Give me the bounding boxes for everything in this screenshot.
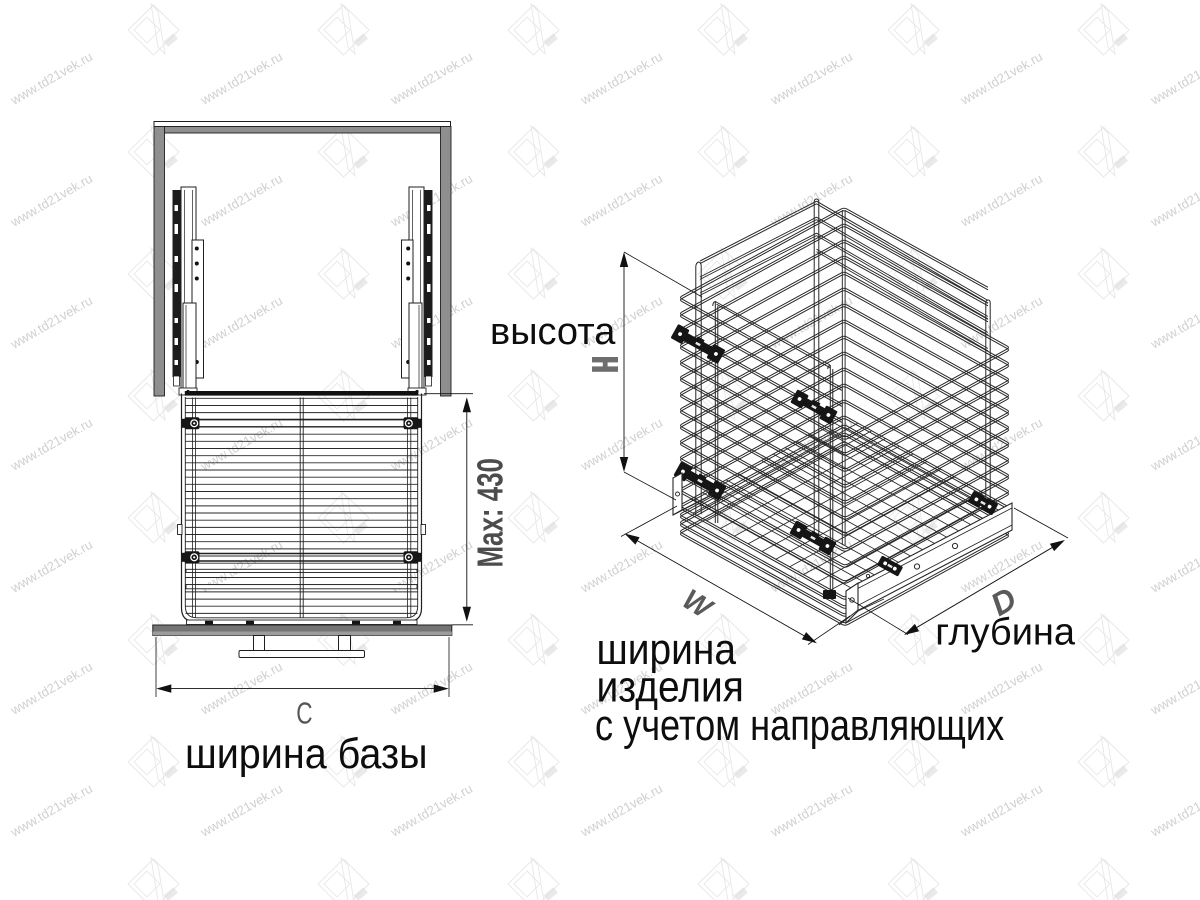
svg-text:высота: высота bbox=[490, 311, 616, 353]
svg-text:с учетом направляющих: с учетом направляющих bbox=[595, 701, 1004, 750]
svg-text:глубина: глубина bbox=[935, 612, 1076, 654]
svg-text:ширина базы: ширина базы bbox=[185, 729, 427, 777]
svg-text:C: C bbox=[296, 696, 312, 730]
svg-text:Max: 430: Max: 430 bbox=[470, 458, 510, 567]
